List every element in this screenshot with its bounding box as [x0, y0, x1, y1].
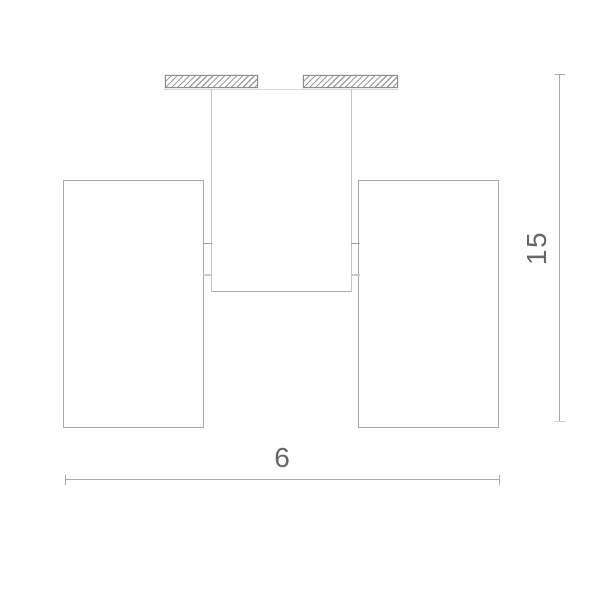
height-dimension-line	[559, 74, 560, 421]
left-mount-plate	[165, 75, 258, 88]
width-dimension-tick-right	[499, 475, 500, 485]
joint-tick-right-upper	[351, 243, 360, 245]
central-mount-body	[211, 89, 352, 292]
height-dimension-label: 15	[521, 231, 553, 265]
left-lamp-outline	[63, 180, 204, 428]
width-dimension-tick-left	[65, 475, 66, 485]
height-dimension-tick-top	[555, 74, 565, 75]
drawing-canvas: 15 6	[0, 0, 600, 601]
width-dimension-label: 6	[274, 442, 290, 474]
right-lamp-outline	[358, 180, 499, 428]
height-dimension-tick-bottom	[555, 421, 565, 423]
width-dimension-line	[65, 479, 500, 480]
joint-tick-left-upper	[203, 243, 212, 245]
joint-tick-right-lower	[351, 274, 360, 276]
right-mount-plate	[303, 75, 398, 88]
joint-tick-left-lower	[203, 274, 212, 276]
